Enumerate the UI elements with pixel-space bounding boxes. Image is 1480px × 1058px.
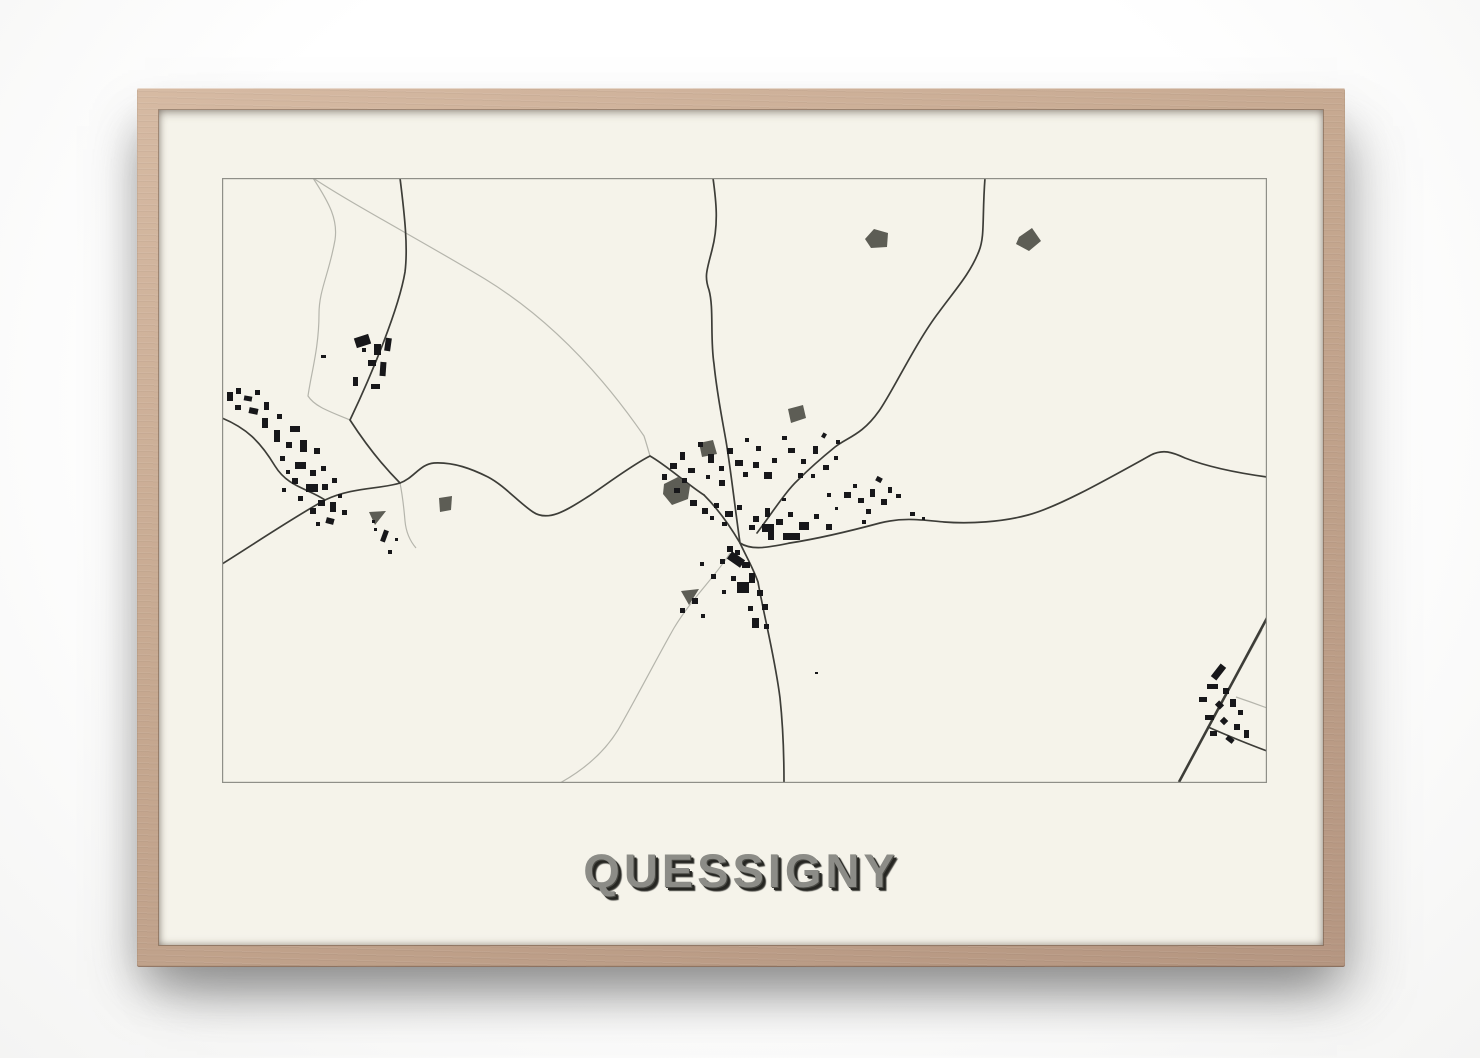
building [1225, 735, 1234, 744]
building [338, 494, 342, 498]
building [727, 546, 733, 552]
building [814, 514, 819, 519]
building [782, 436, 787, 440]
landuse-blob [1016, 228, 1041, 251]
building [844, 492, 851, 498]
building [748, 606, 753, 611]
building [799, 522, 809, 530]
building [753, 462, 759, 468]
building [731, 576, 736, 581]
building [737, 582, 749, 593]
building [875, 476, 883, 483]
building [262, 418, 268, 428]
building [708, 454, 714, 463]
building [1238, 710, 1243, 715]
building [374, 528, 377, 531]
building [1199, 697, 1207, 702]
building [244, 395, 253, 401]
building [321, 466, 326, 471]
building [1230, 699, 1236, 707]
building [783, 533, 800, 540]
building [700, 562, 704, 566]
road-minor [308, 178, 350, 420]
road-major [1208, 727, 1267, 751]
building [813, 446, 818, 454]
building [722, 590, 726, 594]
building [719, 480, 725, 486]
building [286, 470, 290, 474]
building [1234, 724, 1240, 730]
building [768, 532, 774, 540]
building [720, 559, 725, 564]
building [711, 574, 716, 579]
building [306, 484, 318, 492]
building [836, 440, 840, 444]
road-major [706, 178, 740, 543]
building [764, 624, 769, 629]
building [300, 440, 307, 452]
landuse-blob [369, 511, 386, 525]
building [372, 520, 375, 523]
building [896, 494, 901, 498]
building [753, 516, 759, 522]
building [388, 550, 392, 554]
building [752, 618, 759, 628]
building [322, 484, 328, 490]
building [698, 442, 703, 447]
building [782, 498, 786, 501]
building [737, 505, 742, 510]
building [727, 448, 733, 454]
building [764, 472, 772, 479]
building [1220, 717, 1228, 725]
building [1244, 730, 1249, 738]
landuse-blob [788, 405, 806, 423]
building [395, 538, 398, 541]
road-minor [400, 483, 416, 548]
building [870, 489, 875, 497]
poster-title: QUESSIGNY [159, 847, 1323, 894]
building [826, 524, 832, 530]
building [719, 466, 724, 471]
building [922, 517, 925, 520]
building [316, 522, 320, 526]
building [292, 478, 298, 484]
building [749, 525, 755, 530]
building [815, 672, 818, 674]
landuse-blob [439, 496, 452, 512]
building [888, 487, 892, 493]
building [735, 460, 743, 466]
building [835, 507, 838, 510]
building [743, 472, 748, 477]
building [342, 510, 347, 515]
building [776, 519, 783, 525]
building [757, 590, 763, 596]
building [765, 508, 770, 517]
building [680, 452, 685, 460]
building [858, 498, 864, 503]
building [706, 475, 710, 479]
building [290, 426, 300, 432]
building [680, 608, 685, 613]
building [662, 474, 667, 480]
building [853, 484, 857, 488]
building [692, 598, 698, 604]
building [862, 520, 866, 524]
building [682, 478, 687, 483]
building [321, 355, 326, 358]
building [772, 458, 777, 463]
building [330, 502, 336, 512]
building [670, 463, 677, 469]
building [295, 462, 306, 469]
building [834, 456, 838, 460]
building [1205, 715, 1214, 720]
building [380, 362, 387, 376]
building [688, 468, 695, 473]
building [286, 442, 292, 448]
building [332, 478, 337, 483]
building [801, 459, 806, 464]
building [227, 392, 233, 401]
road-minor [560, 553, 730, 783]
building [756, 446, 761, 451]
building [749, 573, 755, 583]
building [277, 414, 282, 419]
building [823, 465, 829, 470]
building [282, 488, 286, 492]
building [811, 474, 815, 478]
building [827, 493, 831, 497]
building [714, 503, 719, 508]
building [274, 430, 280, 442]
building [380, 530, 389, 543]
photo-background: { "poster": { "title": "QUESSIGNY", "tit… [0, 0, 1480, 1058]
building [374, 344, 381, 355]
building [788, 448, 795, 453]
poster-frame: QUESSIGNY [137, 88, 1345, 967]
building [725, 511, 733, 517]
building [910, 512, 915, 516]
road-major [740, 543, 784, 783]
road-minor [1236, 697, 1267, 708]
building [762, 604, 768, 610]
map-svg [222, 178, 1267, 783]
road-major [350, 178, 406, 483]
building [702, 508, 708, 514]
building [280, 456, 285, 461]
building [371, 384, 380, 389]
building [248, 407, 258, 415]
building [353, 377, 358, 386]
building [1207, 684, 1218, 689]
building [798, 473, 803, 478]
building [298, 496, 303, 501]
building [762, 524, 774, 532]
building [1223, 688, 1229, 694]
building [255, 390, 260, 395]
road-minor [313, 178, 650, 456]
railway-line [1179, 618, 1267, 782]
building [1211, 664, 1226, 681]
road-major [757, 178, 985, 533]
building [1210, 731, 1217, 736]
building [314, 448, 320, 454]
building [701, 614, 705, 618]
map-border [223, 179, 1267, 783]
building [821, 432, 827, 438]
building [745, 438, 749, 442]
building [362, 348, 366, 352]
building [368, 360, 376, 366]
building [674, 488, 680, 493]
building [881, 499, 887, 505]
building [318, 500, 325, 506]
building [310, 470, 316, 476]
landuse-blob [865, 229, 888, 248]
building [722, 522, 727, 526]
building [710, 516, 714, 520]
building [235, 405, 241, 410]
building [236, 388, 241, 394]
building [264, 402, 269, 410]
building [866, 509, 871, 514]
building [310, 508, 316, 514]
poster-paper: QUESSIGNY [159, 110, 1323, 945]
building [690, 500, 697, 506]
road-major [222, 456, 704, 564]
building [325, 517, 334, 525]
building [788, 512, 793, 517]
building [354, 334, 371, 348]
